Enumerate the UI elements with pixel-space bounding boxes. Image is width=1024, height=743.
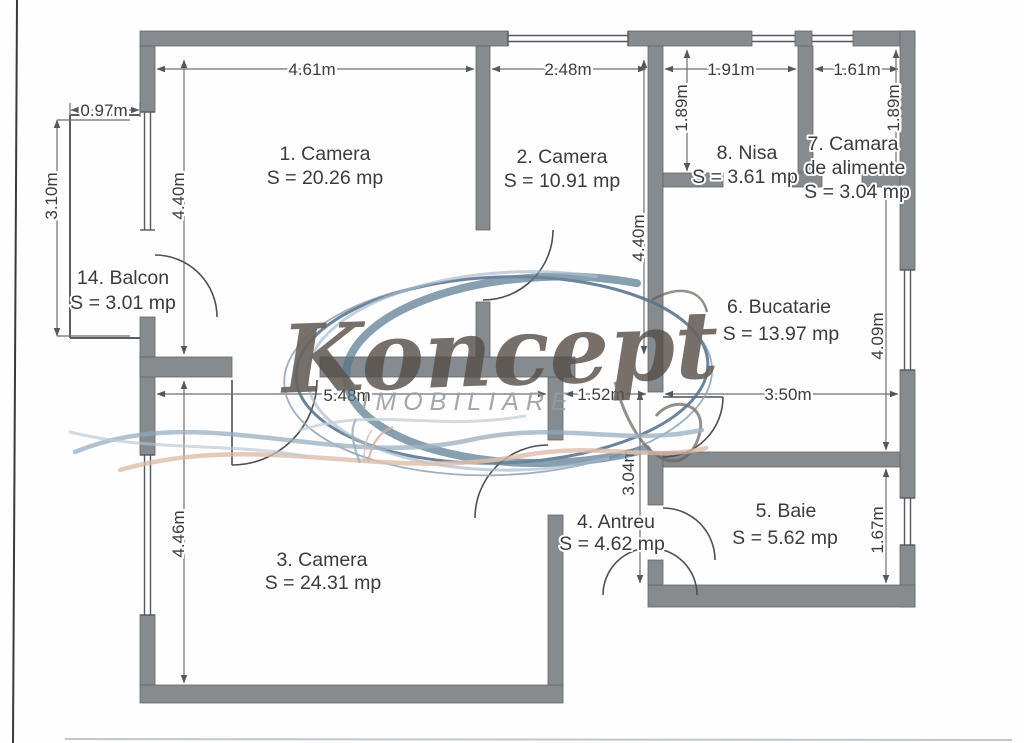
room-label-camera3: 3. Camera [276, 549, 367, 571]
room-area-camera3: S = 24.31 mp [265, 572, 382, 594]
window-room3-left [140, 455, 155, 615]
room-label-camara: 7. Camara [807, 133, 898, 155]
room-label-bucatarie: 6. Bucatarie [727, 296, 831, 318]
dim-camara-width: 1.61m [833, 60, 880, 79]
dim-balcon-width: 0.97m [80, 101, 127, 120]
floorplan-page: 4.61m 2.48m 1.91m 1.61m 0.97m 3.10m 4.40… [0, 0, 1024, 743]
room-area-camera1: S = 20.26 mp [267, 167, 384, 189]
room-area-balcon: S = 3.01 mp [70, 292, 176, 314]
window-camara-top [812, 36, 853, 42]
dim-room2-width: 2.48m [544, 60, 591, 79]
dim-balcon-depth: 3.10m [42, 172, 61, 219]
floorplan-svg: 4.61m 2.48m 1.91m 1.61m 0.97m 3.10m 4.40… [0, 0, 1024, 743]
door-room1-room2 [483, 230, 553, 300]
dim-nisa-width: 1.91m [707, 60, 754, 79]
window-room2-top [508, 31, 628, 46]
dim-room2-height: 4.40m [629, 214, 648, 261]
room-area-camara: S = 3.04 mp [804, 181, 910, 203]
room-area-antreu: S = 4.62 mp [559, 533, 665, 555]
room-area-nisa: S = 3.61 mp [692, 166, 798, 188]
dim-kitchen-height: 4.09m [868, 312, 887, 359]
dim-nisa-height: 1.89m [672, 84, 691, 131]
window-bath-right [900, 498, 915, 545]
dim-kitchen-width: 3.50m [764, 385, 811, 404]
room-label-camera1: 1. Camera [279, 143, 370, 165]
room-label-camera2: 2. Camera [516, 146, 607, 168]
window-balcony-left [140, 112, 155, 230]
page-bottom-scan-line [65, 739, 1012, 740]
room-area-bucatarie: S = 13.97 mp [723, 323, 840, 345]
room-label-baie: 5. Baie [756, 500, 817, 522]
dim-camara-height: 1.89m [884, 84, 903, 131]
window-nisa-top [752, 36, 795, 42]
watermark-subtitle: IMOBILIARE [361, 388, 574, 416]
room-area-camera2: S = 10.91 mp [504, 170, 621, 192]
room-label-antreu: 4. Antreu [577, 511, 655, 533]
room-label-balcon: 14. Balcon [77, 267, 169, 289]
room-label-camara-line2: de alimente [805, 157, 906, 179]
dim-room1-width: 4.61m [288, 60, 335, 79]
window-kitchen-right [900, 270, 915, 370]
dim-bath-height: 1.67m [868, 506, 887, 553]
dim-room3-height: 4.46m [169, 510, 188, 557]
room-area-baie: S = 5.62 mp [732, 527, 838, 549]
dim-room1-height: 4.40m [169, 172, 188, 219]
page-edge-line [13, 0, 17, 743]
room-label-nisa: 8. Nisa [717, 142, 778, 164]
